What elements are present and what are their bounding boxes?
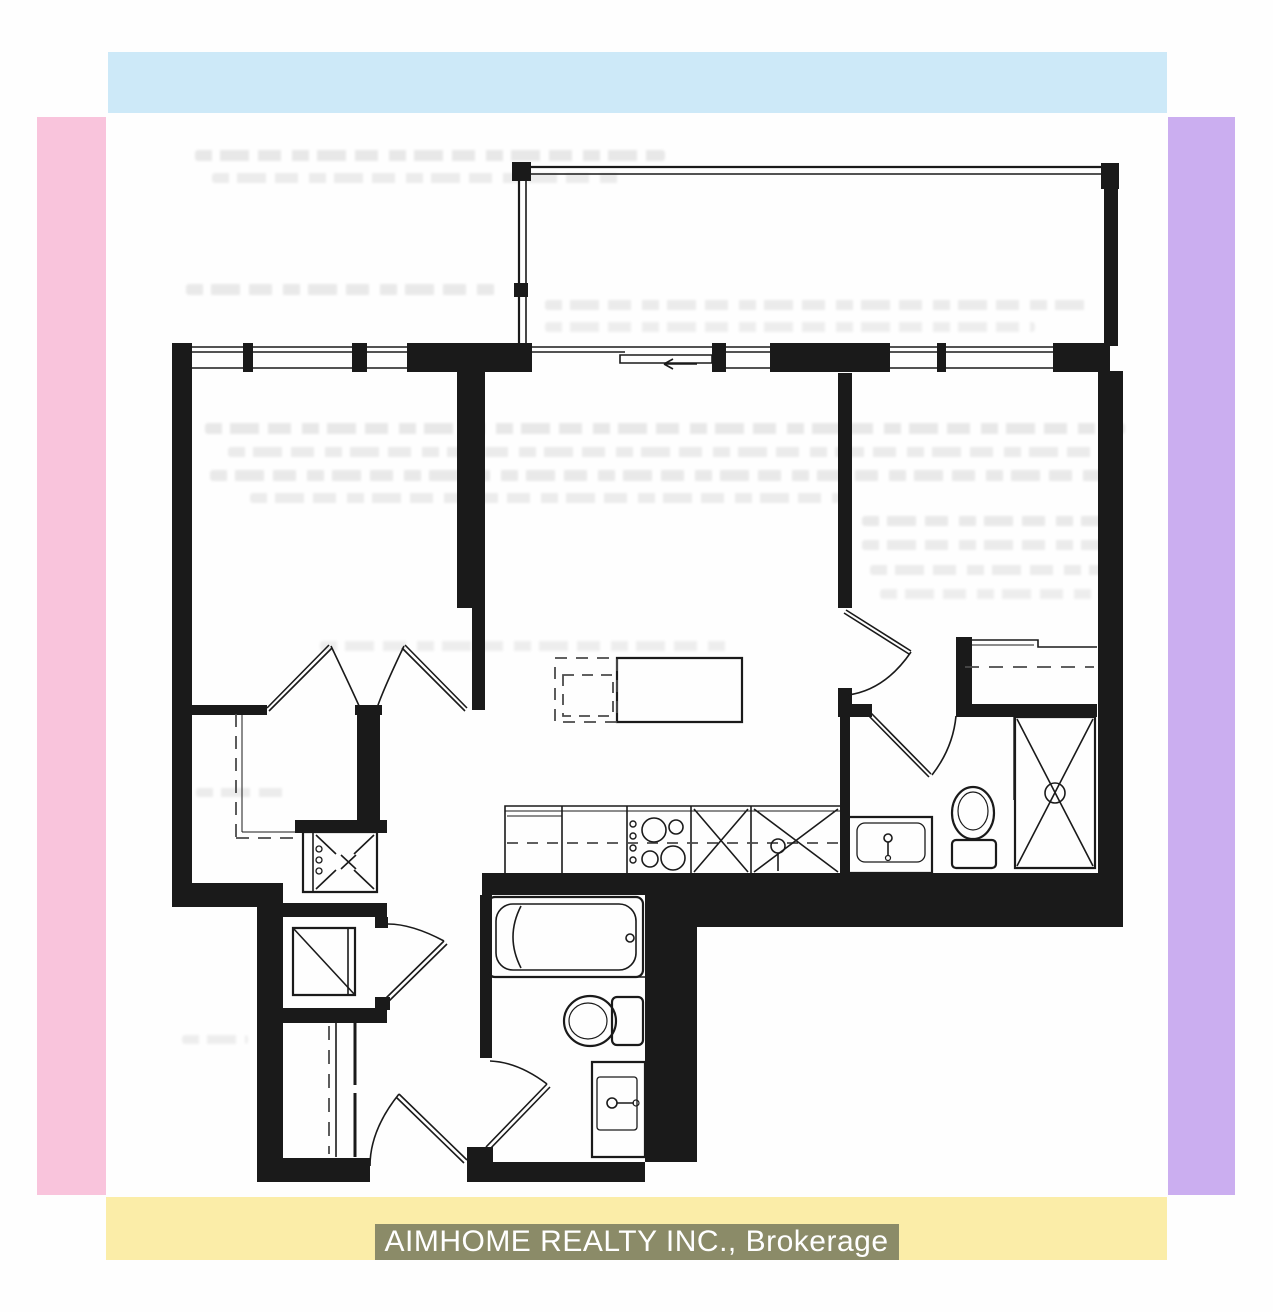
cooktop-icon [630, 818, 685, 870]
main-toilet-icon [564, 996, 643, 1046]
top-wall [172, 343, 1110, 372]
closet-dashed-shelving [236, 714, 295, 838]
shower-icon [1014, 717, 1095, 868]
exterior-walls [172, 358, 1123, 1182]
bathtub-icon [482, 897, 645, 977]
floor-plan-drawing [0, 0, 1273, 1312]
kitchen-island [555, 658, 742, 722]
balcony-post [512, 162, 531, 181]
ensuite-toilet-icon [952, 787, 996, 868]
island-dashed-inner [563, 675, 613, 716]
balcony-mid-post [514, 283, 528, 297]
cabinet-x-icon [694, 809, 748, 872]
entry-closet-sliding-doors [329, 1023, 355, 1157]
washer-box-icon [303, 832, 377, 892]
brokerage-watermark: AIMHOME REALTY INC., Brokerage [374, 1224, 898, 1260]
sliding-door [532, 347, 712, 369]
kitchen-counter [505, 806, 841, 875]
double-closet-doors [267, 645, 467, 711]
island-dashed-extension [555, 658, 617, 722]
bedroom-door [844, 610, 911, 695]
kitchen-sink-icon [754, 809, 838, 872]
laundry-door [384, 924, 447, 1003]
ensuite-bath-door [868, 713, 956, 777]
balcony-side-wall [1104, 166, 1118, 346]
entry-door [370, 1094, 467, 1166]
ensuite-vanity-sink-icon [848, 817, 932, 873]
stacked-unit-icon [293, 928, 355, 995]
main-vanity-sink-icon [592, 1062, 645, 1157]
main-bath-door [486, 1061, 550, 1150]
bedroom-closet [965, 640, 1097, 667]
window-lines [192, 347, 1053, 368]
scanned-floorplan-page: AIMHOME REALTY INC., Brokerage [0, 0, 1273, 1312]
balcony [512, 162, 1119, 346]
slide-arrow-icon [664, 359, 697, 369]
